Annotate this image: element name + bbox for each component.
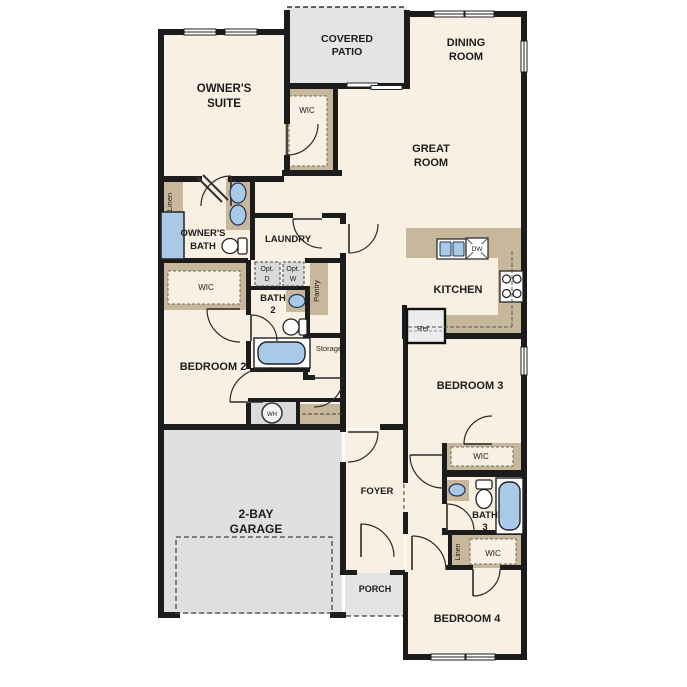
wall-garage-bottom-right (330, 612, 346, 618)
wall-bath2-top (250, 286, 308, 290)
wall-wing-left-c (403, 572, 408, 660)
wall-owner-bath-top-a (158, 176, 202, 182)
label-linen4: Linen (455, 543, 462, 560)
label-porch: PORCH (359, 584, 392, 594)
wall-hall-left-a (340, 213, 346, 224)
label-bedroom4: BEDROOM 4 (434, 613, 502, 625)
wall-foyer-top (380, 424, 406, 430)
burner-2 (513, 275, 521, 283)
floor-plan-svg: COVEREDPATIODININGROOMOWNER'SSUITEGREATR… (0, 0, 687, 687)
label-b3-wic: WIC (473, 452, 489, 461)
toilet1-bowl (222, 239, 238, 254)
toilet2-bowl (283, 319, 299, 335)
label-laundry: LAUNDRY (265, 234, 312, 245)
wall-patio-right (404, 10, 410, 89)
label-b2-wic: WIC (198, 283, 214, 292)
wall-bath3-top (442, 470, 527, 477)
coat-closet-shelf (300, 404, 344, 426)
toilet2-tank (299, 319, 307, 335)
label-kitchen: KITCHEN (434, 284, 483, 296)
burner-4 (513, 290, 521, 298)
wall-storage-bottom (303, 375, 315, 380)
wall-owner-bath-top-b (228, 176, 284, 182)
toilet3-tank (476, 480, 492, 489)
wall-b4-top-a (446, 565, 473, 570)
kitchen-sink-left (440, 242, 451, 256)
wall-top-left (158, 29, 289, 35)
wall-owner-wic-right (333, 88, 338, 176)
slider-panel-b (371, 86, 402, 90)
wall-wic3-left (442, 443, 447, 470)
label-pantry: Pantry (312, 280, 321, 302)
wall-pantry-top (305, 258, 345, 263)
label-linen1: Linen (165, 193, 174, 211)
sink1-bowl-a (230, 183, 246, 203)
label-dw: DW (472, 246, 484, 253)
wall-foyer-porch-a (345, 570, 357, 575)
sink1-bowl-b (230, 205, 246, 225)
wall-b4-top-b (500, 565, 527, 570)
floor-foyer (345, 430, 405, 573)
bath3-sink-bowl (449, 484, 465, 496)
wall-storage-top (303, 333, 346, 338)
label-owner-wic: WIC (299, 106, 315, 115)
wall-owner-right-a (284, 10, 290, 124)
label-bedroom2: BEDROOM 2 (180, 361, 247, 373)
label-b4-wic: WIC (485, 549, 501, 558)
kitchen-sink-right (453, 242, 464, 256)
wall-bath3-left-a (442, 476, 447, 504)
wall-linen4-left (448, 533, 452, 568)
porch-floor (345, 573, 403, 616)
label-bedroom3: BEDROOM 3 (437, 380, 504, 392)
label-ref: Ref (417, 324, 430, 333)
wall-b2-right-b (246, 341, 251, 369)
label-foyer: FOYER (361, 486, 394, 497)
wall-wing-left-a (403, 338, 408, 483)
wall-wing-left-b (403, 512, 408, 534)
wall-wh-div (296, 400, 300, 426)
burner-3 (503, 290, 511, 298)
tub2-fixture (258, 342, 305, 364)
wall-foyer-porch-b (390, 570, 405, 575)
tub3-fixture (499, 482, 520, 530)
toilet3-bowl (476, 490, 492, 509)
toilet1-tank (238, 238, 247, 254)
label-wh: WH (267, 412, 277, 418)
wall-hall-bottom (158, 424, 346, 430)
bath2-sink-bowl (289, 295, 305, 308)
garage-floor (161, 428, 342, 614)
wall-left (158, 29, 164, 618)
wall-garage-right-b (340, 462, 346, 575)
wall-laundry-top-a (250, 213, 293, 218)
burner-1 (503, 275, 511, 283)
floor-plan-canvas: COVEREDPATIODININGROOMOWNER'SSUITEGREATR… (0, 0, 687, 687)
label-storage: Storage (316, 344, 342, 353)
